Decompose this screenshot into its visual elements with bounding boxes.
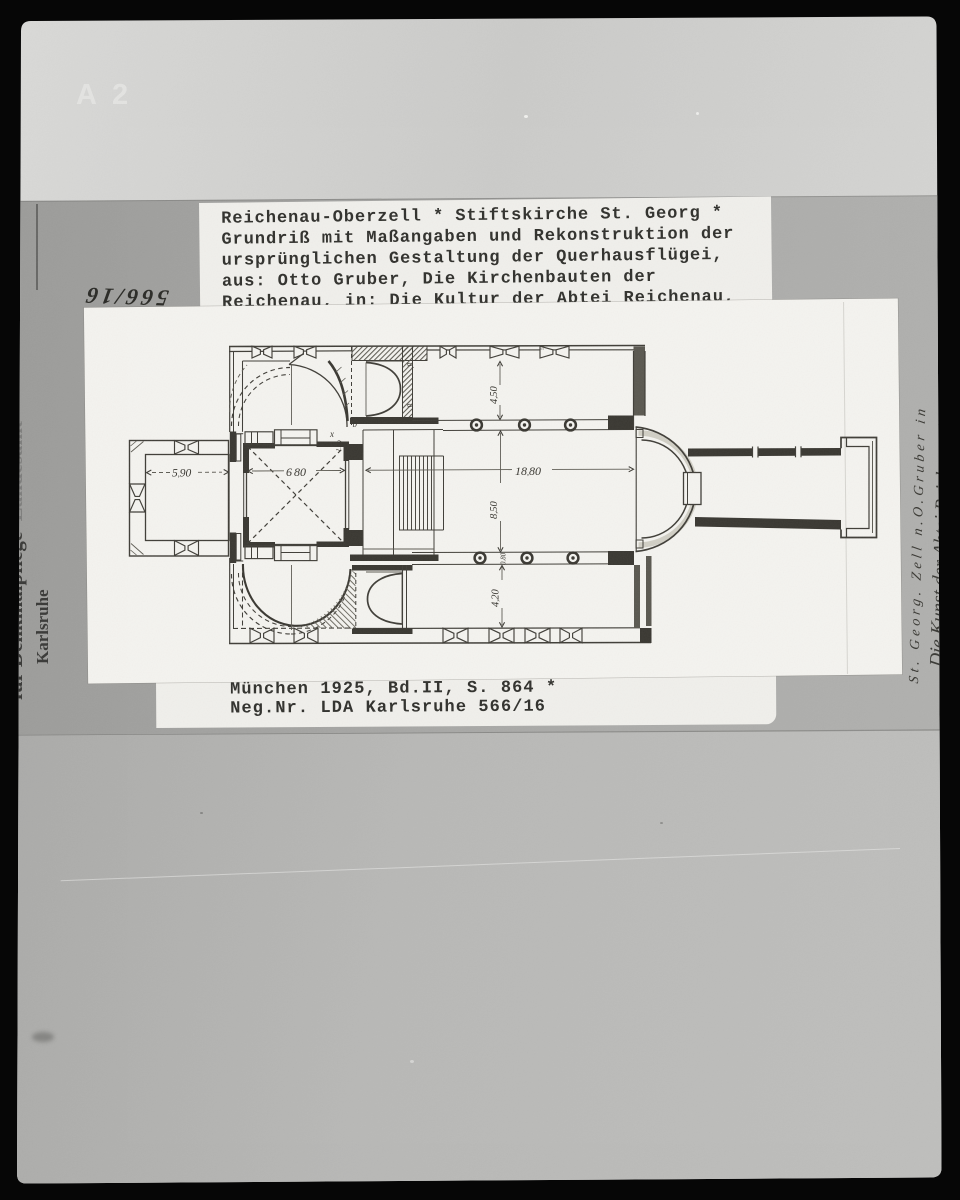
svg-text:8,50: 8,50 xyxy=(489,501,500,520)
svg-text:4,50: 4,50 xyxy=(489,386,500,405)
svg-text:··: ·· xyxy=(540,345,544,354)
svg-text:a′: a′ xyxy=(405,361,416,369)
svg-text:b: b xyxy=(353,419,358,429)
svg-text:4,20: 4,20 xyxy=(491,589,502,608)
svg-text:x: x xyxy=(329,429,334,439)
svg-text:6 80: 6 80 xyxy=(286,465,306,479)
svg-text:5,90: 5,90 xyxy=(172,468,192,480)
svg-text:1.00: 1.00 xyxy=(335,439,344,452)
svg-text:18,80: 18,80 xyxy=(515,464,541,478)
svg-text:0.80: 0.80 xyxy=(500,552,508,565)
